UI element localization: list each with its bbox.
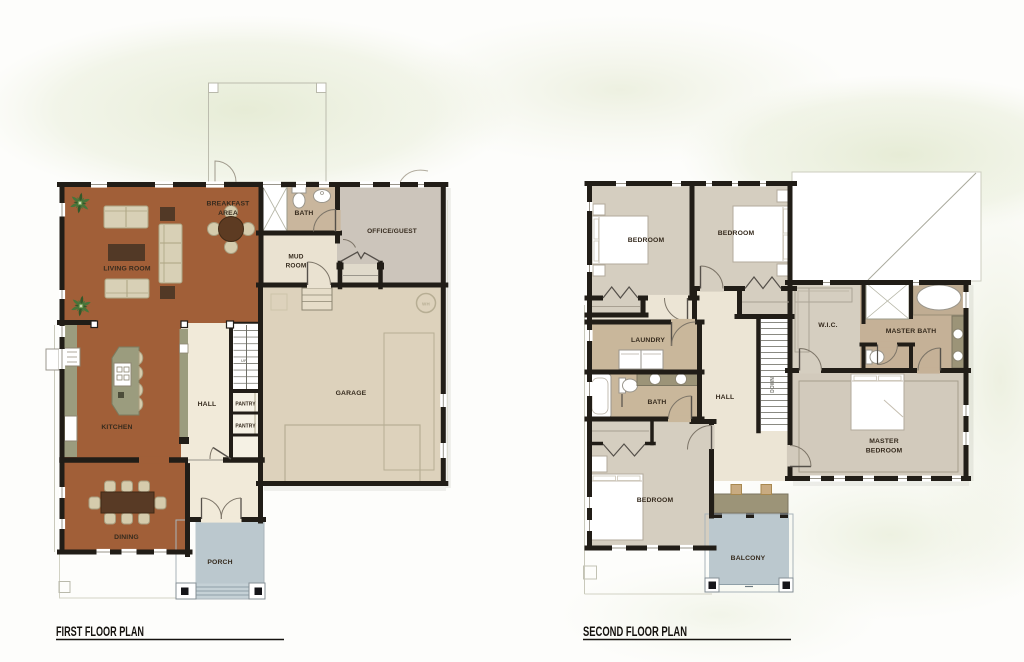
svg-text:SECOND FLOOR PLAN: SECOND FLOOR PLAN <box>583 624 687 639</box>
svg-text:BEDROOM: BEDROOM <box>637 497 674 504</box>
svg-text:HALL: HALL <box>716 394 735 401</box>
svg-text:OFFICE/GUEST: OFFICE/GUEST <box>367 228 417 235</box>
svg-text:ROOM: ROOM <box>286 263 307 270</box>
svg-text:BEDROOM: BEDROOM <box>718 230 755 237</box>
svg-text:LAUNDRY: LAUNDRY <box>631 337 665 344</box>
svg-text:KITCHEN: KITCHEN <box>101 424 132 431</box>
svg-text:BEDROOM: BEDROOM <box>866 448 903 455</box>
svg-text:WH: WH <box>422 302 430 307</box>
svg-text:BREAKFAST: BREAKFAST <box>207 201 251 208</box>
svg-text:W.I.C.: W.I.C. <box>818 322 837 329</box>
svg-text:MASTER: MASTER <box>869 438 899 445</box>
svg-text:MUD: MUD <box>288 254 303 261</box>
svg-text:UP: UP <box>241 358 247 363</box>
svg-text:MASTER BATH: MASTER BATH <box>886 328 937 335</box>
svg-text:BALCONY: BALCONY <box>731 555 766 562</box>
svg-text:PANTRY: PANTRY <box>235 424 256 430</box>
svg-text:FIRST FLOOR PLAN: FIRST FLOOR PLAN <box>56 624 144 639</box>
svg-text:HALL: HALL <box>198 401 217 408</box>
svg-text:AREA: AREA <box>218 210 238 217</box>
svg-text:BATH: BATH <box>295 210 314 217</box>
svg-text:LIVING ROOM: LIVING ROOM <box>103 266 151 273</box>
svg-text:BEDROOM: BEDROOM <box>628 237 665 244</box>
svg-text:BATH: BATH <box>648 399 667 406</box>
svg-text:GARAGE: GARAGE <box>336 390 367 397</box>
svg-text:DOWN: DOWN <box>770 377 776 393</box>
svg-text:DINING: DINING <box>114 534 139 541</box>
svg-text:PORCH: PORCH <box>207 559 232 566</box>
svg-text:PANTRY: PANTRY <box>235 402 256 408</box>
